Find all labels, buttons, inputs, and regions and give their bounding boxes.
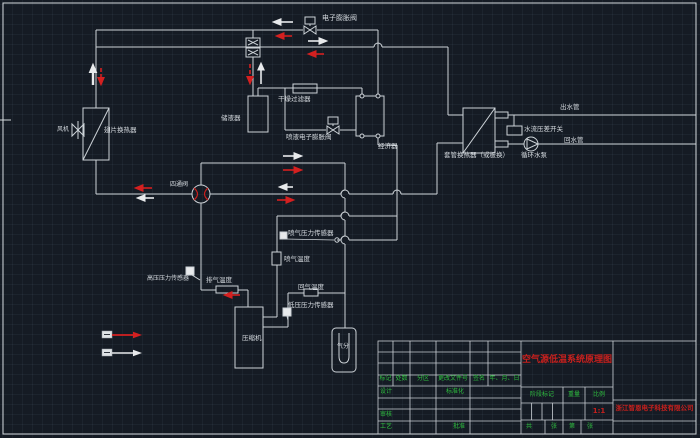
injection-temp-probe-icon (272, 252, 281, 265)
discharge-temp-probe-icon (216, 286, 238, 293)
return-temp-label: 回气温度 (298, 284, 324, 291)
coax-hx-label: 套管换热器（或板换） (444, 152, 509, 159)
water-heat-exchanger-symbol (463, 108, 508, 153)
rev-header-date: 年、月、日 (488, 376, 521, 382)
company-name: 浙江智恩电子科技有限公司 (613, 405, 696, 412)
low-pressure-sensor-icon (283, 308, 291, 320)
four-way-valve-symbol (192, 185, 210, 203)
rev-header-count: 处数 (393, 376, 410, 382)
fin-hx-label: 翅片换热器 (104, 127, 137, 134)
four-way-valve-label: 四通阀 (170, 182, 188, 188)
water-out-label: 出水管 (560, 104, 580, 111)
standardize-label: 标准化 (446, 389, 464, 395)
flow-switch-symbol (507, 126, 522, 135)
sheet-total-label: 共 (526, 424, 532, 430)
process-label: 工艺 (380, 424, 392, 430)
drawing-border (0, 3, 696, 434)
rev-header-zone: 分区 (410, 376, 436, 382)
high-pressure-label: 高压压力传感器 (147, 276, 189, 282)
white-flow-arrows (89, 19, 327, 201)
eev-label: 电子膨胀阀 (322, 15, 357, 22)
separator-label: 气分 (337, 344, 349, 350)
white-flow-arrow-icon (102, 349, 142, 356)
scale-label: 比例 (585, 392, 613, 398)
drawing-title: 空气源低温系统原理图 (521, 356, 613, 365)
rev-header-sign: 签名 (470, 376, 488, 382)
fan-icon (72, 121, 84, 139)
fan-label: 风机 (57, 127, 69, 133)
inj-temp-label: 喷气温度 (284, 256, 310, 263)
check-valves-symbol (246, 38, 260, 57)
rev-header-mark: 标记 (378, 376, 393, 382)
cad-canvas: 电子膨胀阀 风机 翅片换热器 储液器 干燥过滤器 喷液电子膨胀阀 经济器 套管换… (0, 0, 700, 438)
pipes (96, 30, 696, 328)
economizer-symbol (356, 94, 384, 138)
economizer-label: 经济器 (378, 143, 398, 150)
approve-label: 批准 (453, 424, 465, 430)
review-label: 审核 (380, 412, 392, 418)
separator-symbol (332, 328, 356, 372)
fin-heat-exchanger-symbol (83, 108, 109, 160)
low-pressure-label: 低压压力传感器 (288, 302, 334, 309)
compressor-label: 压缩机 (242, 335, 262, 342)
liquid-eev-symbol (327, 117, 339, 134)
water-return-label: 回水管 (564, 137, 584, 144)
design-label: 设计 (380, 389, 392, 395)
eev-symbol (304, 17, 316, 34)
rev-header-docno: 更改文件号 (436, 376, 470, 382)
sheet-unit1-label: 张 (551, 424, 557, 430)
schematic-drawing (0, 0, 700, 438)
drier-label: 干燥过滤器 (278, 96, 311, 103)
receiver-label: 储液器 (221, 115, 241, 122)
scale-value: 1:1 (585, 408, 613, 415)
receiver-symbol (248, 96, 268, 132)
red-flow-arrow-icon (102, 331, 142, 338)
discharge-temp-label: 排气温度 (206, 277, 232, 284)
pump-symbol (524, 137, 538, 151)
pump-label: 循环水泵 (521, 152, 547, 159)
sheet-unit2-label: 张 (587, 424, 593, 430)
sheet-no-label: 第 (569, 424, 575, 430)
stage-mark-label: 阶段标记 (521, 392, 563, 398)
weight-label: 重量 (563, 392, 585, 398)
flow-switch-label: 水流压差开关 (524, 126, 563, 133)
inj-pressure-label: 喷气压力传感器 (288, 230, 334, 237)
liquid-eev-label: 喷液电子膨胀阀 (286, 134, 332, 141)
flow-legend (102, 331, 142, 356)
